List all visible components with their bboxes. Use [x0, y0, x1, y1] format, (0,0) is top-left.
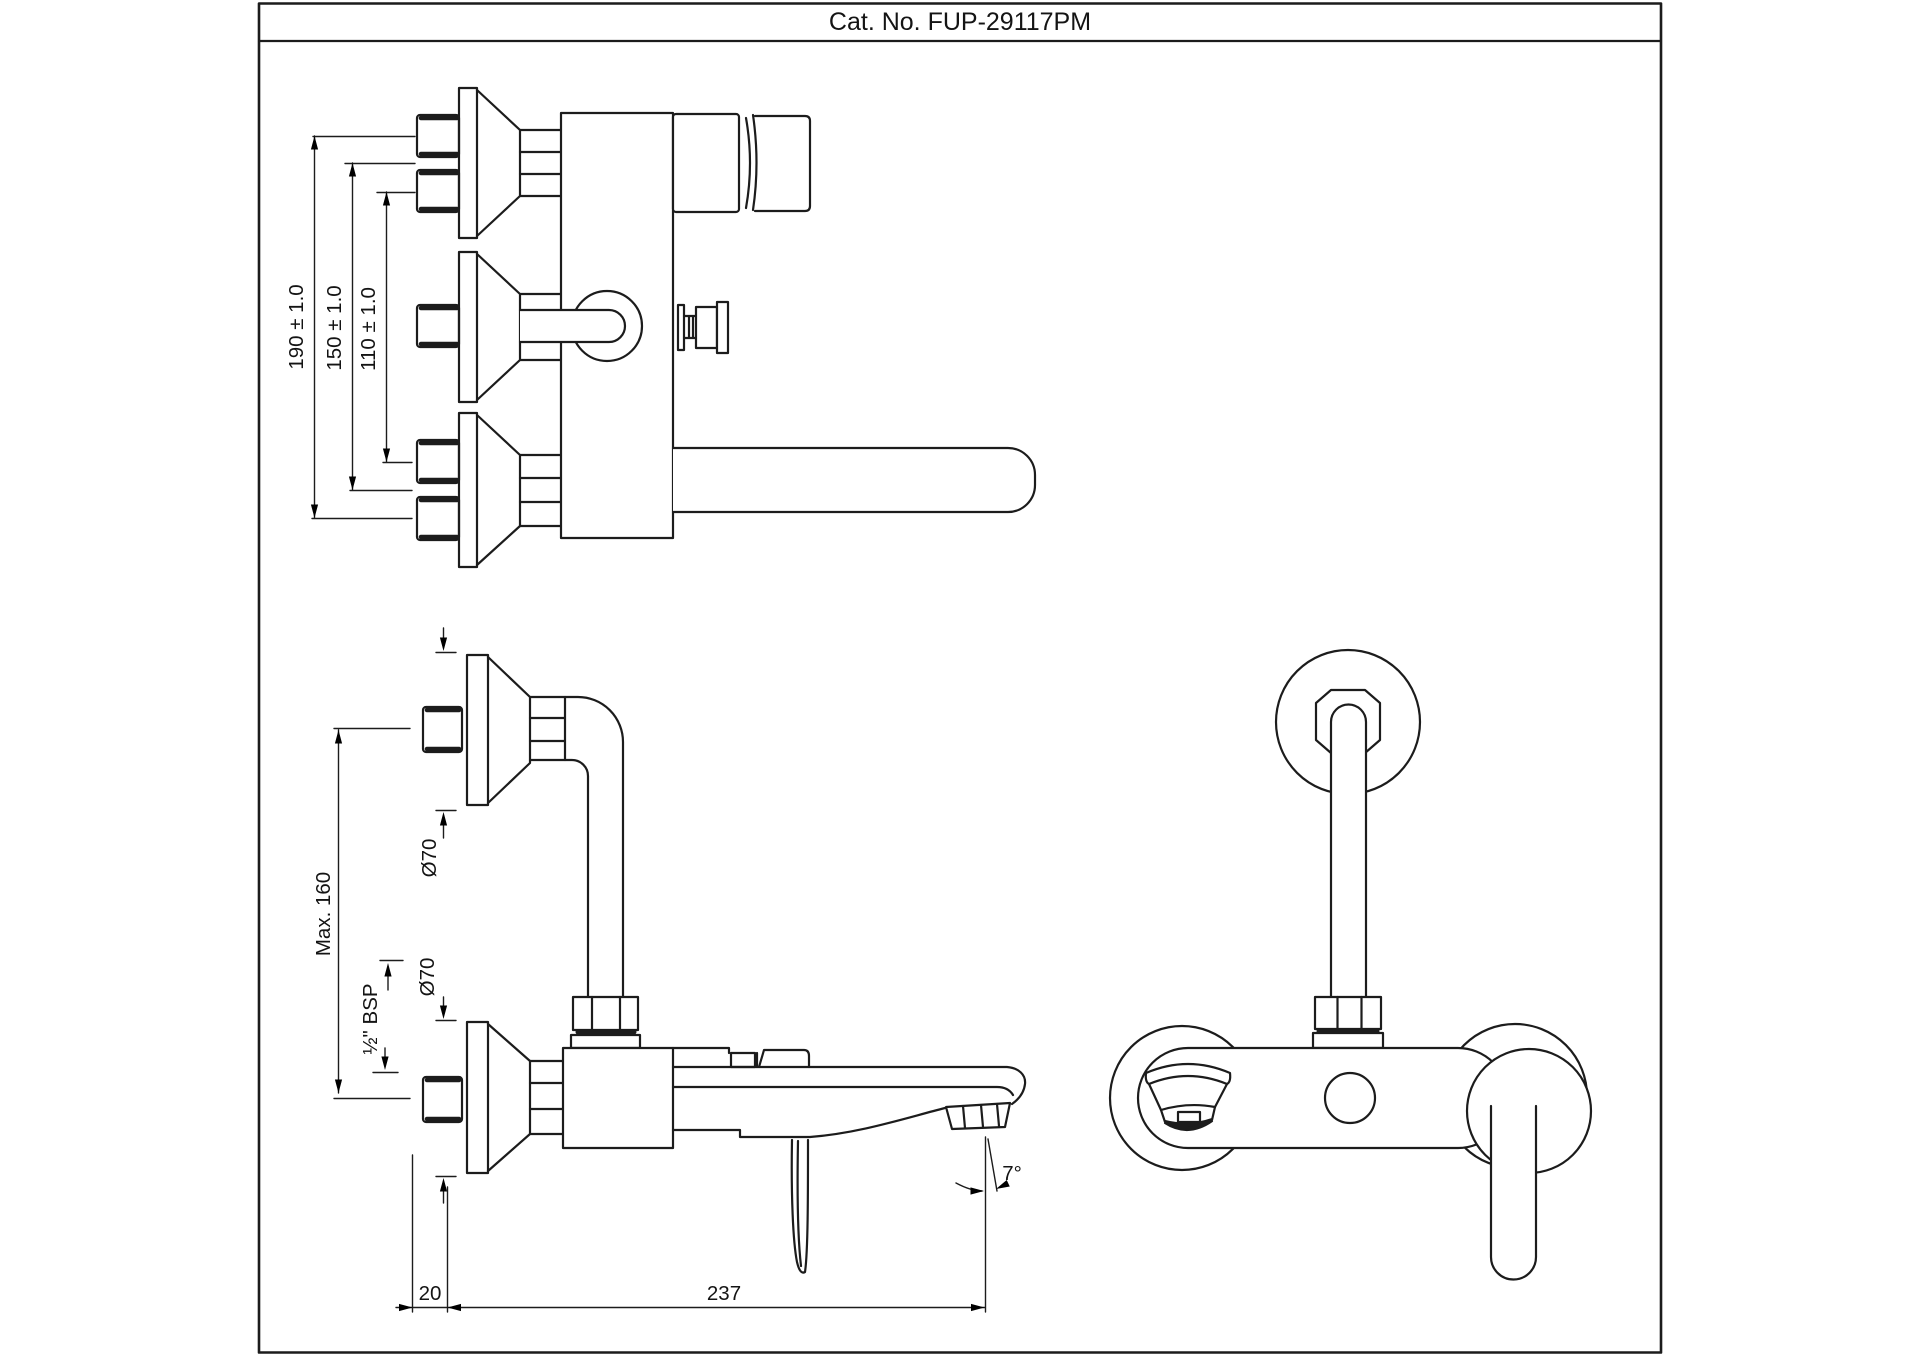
wall-flange-top: [459, 88, 561, 238]
mixer-body-side: [563, 1048, 673, 1148]
dimension-label: 190 ± 1.0: [285, 284, 308, 369]
wall-flange-bottom: [459, 413, 561, 567]
dimension-label: ½" BSP: [359, 983, 382, 1054]
supply-pipe-bend: [565, 697, 623, 997]
front-view: [1110, 650, 1591, 1280]
connection-nut-side: [571, 997, 640, 1048]
dimension-110: 110 ± 1.0: [357, 192, 415, 463]
inlet-nipple: [417, 440, 459, 483]
dimension-label: Ø70: [416, 958, 439, 997]
technical-drawing: Cat. No. FUP-29117PM: [0, 0, 1920, 1356]
mixer-body-front: [1138, 1048, 1508, 1148]
side-view: Max. 160 Ø70 Ø70 ½" BSP 20 237: [312, 628, 1025, 1312]
aerator-side: [946, 1103, 1010, 1129]
dimension-label: 7°: [1002, 1162, 1022, 1185]
dimension-label: Ø70: [418, 839, 441, 878]
dimension-20-237: 20 237: [396, 1137, 986, 1312]
pipe-hex-nut: [1316, 690, 1380, 997]
dimension-label: 237: [707, 1282, 741, 1305]
inlet-nipple: [417, 305, 459, 347]
dimension-label: 110 ± 1.0: [357, 287, 380, 371]
wall-flange-lower: [467, 1022, 563, 1173]
connection-nut-front: [1313, 997, 1383, 1048]
top-view: 190 ± 1.0 150 ± 1.0 110 ± 1.0: [285, 88, 1035, 567]
diverter-knob-top: [678, 302, 728, 353]
lever-handle-side: [792, 1140, 808, 1273]
inlet-nipple: [423, 707, 462, 752]
dimension-label: 20: [419, 1282, 442, 1305]
wall-flange-upper: [467, 655, 565, 805]
dimension-angle-7: 7°: [956, 1139, 1022, 1195]
inlet-nipple: [417, 115, 459, 157]
dimension-bsp-thread: ½" BSP: [359, 961, 403, 1073]
dimension-label: Max. 160: [312, 872, 335, 956]
inlet-nipple: [417, 170, 459, 212]
drawing-frame: Cat. No. FUP-29117PM: [259, 4, 1661, 1353]
dimension-label: 150 ± 1.0: [323, 285, 346, 370]
inlet-nipple: [417, 497, 459, 540]
spout-top: [673, 448, 1035, 512]
dimension-190: 190 ± 1.0: [285, 136, 415, 519]
diverter-button-front: [1325, 1073, 1375, 1123]
inlet-nipple: [423, 1077, 462, 1122]
catalog-number: Cat. No. FUP-29117PM: [829, 8, 1091, 36]
single-lever-handle-top: [673, 114, 810, 212]
lever-handle-front: [1467, 1049, 1591, 1280]
